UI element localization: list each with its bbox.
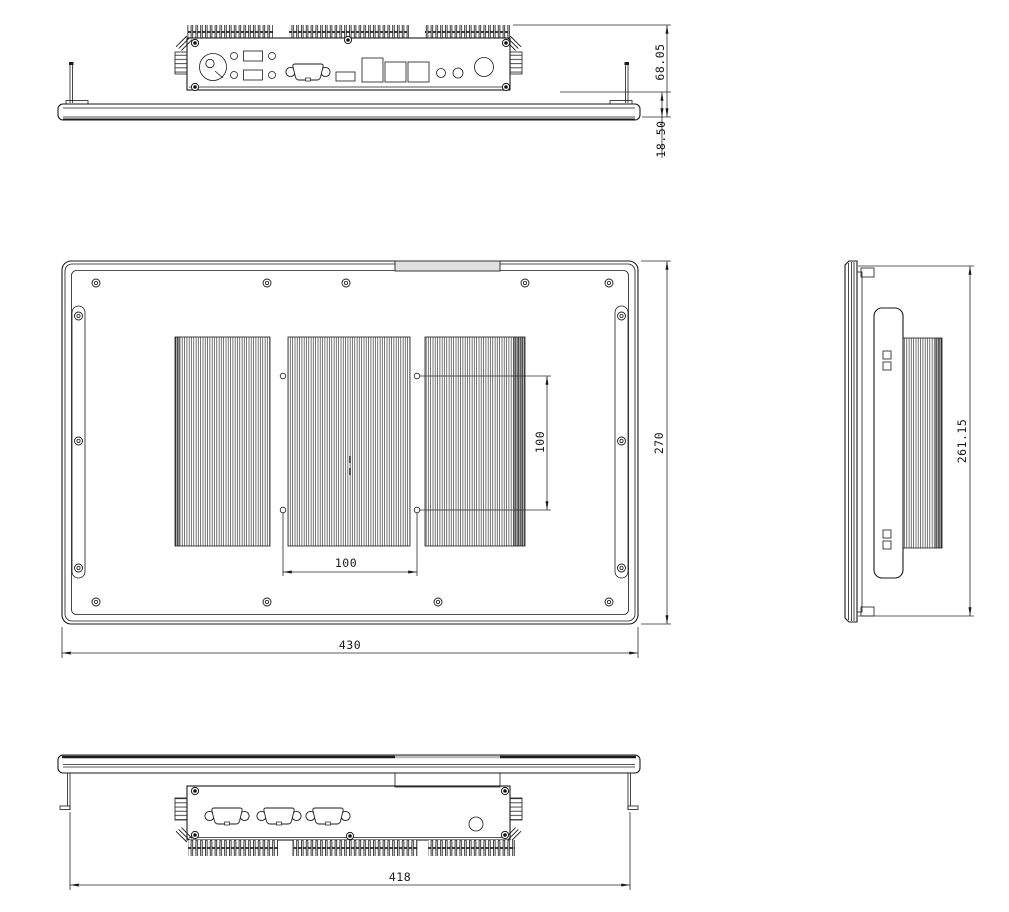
side-cutout — [883, 362, 891, 370]
top-view-chassis — [187, 38, 510, 90]
screw-icon — [191, 831, 198, 838]
bezel-step-top — [861, 268, 874, 277]
screw-icon — [263, 598, 271, 606]
hdmi-port — [336, 72, 355, 81]
power-button-hole — [469, 817, 483, 831]
heatsink-fins-right — [425, 337, 525, 546]
audio-jack — [453, 68, 463, 78]
screw-icon — [521, 279, 529, 287]
vesa-hole — [280, 507, 286, 513]
dimension-total-height: 68.05 — [513, 25, 671, 117]
mount-clip — [66, 62, 88, 104]
dim-label-vesa-horizontal: 100 — [335, 556, 357, 570]
top-handle-tab — [395, 261, 500, 271]
screw-icon — [618, 564, 626, 572]
screw-icon — [618, 437, 626, 445]
top-view: 68.05 18.50 — [58, 25, 671, 158]
dim-label-panel-thickness: 18.50 — [654, 120, 668, 157]
serial-port-com1 — [205, 808, 249, 825]
expansion-port — [408, 62, 429, 82]
screw-icon — [618, 312, 626, 320]
side-fins — [175, 798, 187, 820]
dim-label-rear-width: 430 — [339, 638, 361, 652]
screw-icon — [502, 39, 509, 46]
side-bezel — [845, 261, 857, 622]
screw-icon — [191, 787, 198, 794]
heatsink-fins-middle — [288, 337, 410, 546]
side-chassis — [874, 308, 903, 578]
heatsink-fins-left — [175, 337, 270, 546]
corner-hatch-icon — [176, 828, 192, 842]
usb-port — [244, 51, 263, 61]
top-view-fin-comb-left — [187, 25, 273, 38]
screw-icon — [263, 279, 271, 287]
dimension-rear-height: 270 — [641, 261, 671, 624]
screw-icon — [191, 83, 198, 90]
side-cutout — [883, 530, 891, 538]
rear-view: 100 100 430 270 — [62, 261, 671, 658]
screw-icon — [75, 564, 83, 572]
vga-connector — [286, 64, 330, 81]
side-fins — [175, 52, 187, 74]
dc-power-pin — [206, 59, 214, 67]
bottom-view: 418 — [58, 755, 640, 890]
screw-icon — [605, 279, 613, 287]
dimension-panel-thickness: 18.50 — [560, 92, 671, 158]
lan-port — [362, 58, 383, 82]
dim-label-bottom-width: 418 — [389, 870, 411, 884]
side-fins — [510, 798, 522, 820]
vesa-hole — [414, 373, 420, 379]
side-cutout — [883, 541, 891, 549]
bottom-fin-comb-middle — [292, 840, 418, 856]
screw-icon — [342, 279, 350, 287]
side-view: 261.15 — [845, 261, 974, 622]
dimension-rear-width: 430 — [62, 627, 638, 658]
screw-icon — [501, 787, 508, 794]
technical-drawing-page: 68.05 18.50 — [0, 0, 1009, 912]
mount-clip — [60, 773, 70, 810]
screw-icon — [191, 39, 198, 46]
screw-hole — [231, 53, 238, 60]
screw-hole — [269, 72, 276, 79]
mount-clip — [628, 773, 638, 810]
top-io-panel — [200, 51, 494, 82]
bottom-fin-comb-left — [188, 840, 278, 856]
front-panel-edge — [58, 104, 640, 120]
screw-icon — [92, 598, 100, 606]
screw-icon — [346, 832, 353, 839]
vesa-hole — [414, 507, 420, 513]
glass-edge — [857, 272, 862, 612]
mount-clip — [610, 62, 632, 104]
dc-power-jack — [200, 54, 227, 81]
screw-icon — [501, 831, 508, 838]
screw-hole — [269, 53, 276, 60]
bottom-fin-comb-right — [428, 840, 515, 856]
serial-port-com2 — [257, 808, 301, 825]
audio-jack — [437, 69, 446, 78]
side-cutout — [883, 351, 891, 359]
corner-hatch-icon — [176, 36, 192, 50]
screw-icon — [344, 36, 351, 43]
dim-label-rear-height: 270 — [652, 432, 666, 454]
panel-pc-drawing: 68.05 18.50 — [0, 0, 1009, 912]
bezel-step-bottom — [861, 607, 874, 616]
dim-label-side-height: 261.15 — [955, 419, 969, 464]
screw-icon — [92, 279, 100, 287]
bottom-handle-tab — [395, 773, 500, 787]
screw-icon — [502, 83, 509, 90]
lan-port — [385, 62, 406, 82]
screw-icon — [605, 598, 613, 606]
serial-port-com3 — [306, 808, 350, 825]
dim-label-vesa-vertical: 100 — [533, 431, 547, 453]
screw-icon — [75, 437, 83, 445]
antenna-hole — [475, 58, 494, 77]
screw-icon — [75, 312, 83, 320]
side-fins — [510, 52, 522, 74]
screw-icon — [434, 598, 442, 606]
screw-hole — [231, 72, 238, 79]
dim-label-total-height: 68.05 — [653, 43, 667, 80]
vesa-hole — [280, 373, 286, 379]
top-view-fin-comb-right — [425, 25, 510, 38]
usb-port — [244, 70, 263, 80]
